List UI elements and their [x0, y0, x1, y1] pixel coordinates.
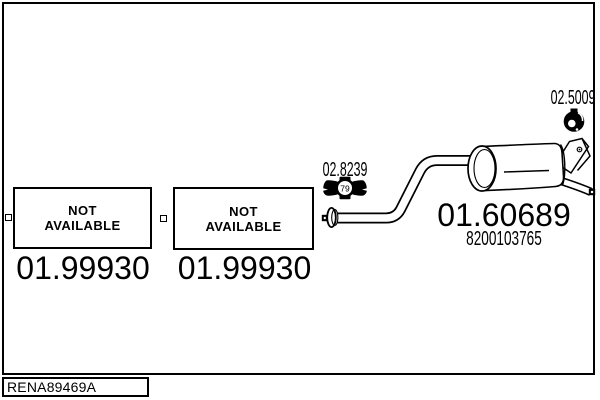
rubber-hanger-icon — [564, 109, 585, 132]
diagram-page: 79 NOT AVAILABLE NOT AVAILABLE 01.99930 … — [0, 0, 600, 400]
drawing-code: RENA89469A — [4, 380, 96, 394]
part-number-clamp[interactable]: 02.8239 — [314, 160, 376, 180]
connector-square-left — [5, 214, 12, 221]
part-number-middle[interactable]: 01.99930 — [174, 252, 315, 284]
oem-number-muffler: 8200103765 — [456, 229, 551, 249]
muffler-end-cap — [468, 146, 496, 191]
drawing-code-box: RENA89469A — [2, 377, 149, 397]
clamp-size-label: 79 — [340, 184, 350, 194]
part-number-muffler[interactable]: 01.60689 — [434, 199, 574, 231]
muffler-body — [468, 144, 565, 192]
not-available-label: AVAILABLE — [205, 219, 281, 234]
not-available-label: AVAILABLE — [44, 218, 120, 233]
not-available-label: NOT — [68, 203, 97, 218]
flange-icon — [322, 208, 338, 227]
part-number-left[interactable]: 01.99930 — [13, 252, 153, 284]
not-available-box-left: NOT AVAILABLE — [13, 187, 152, 249]
not-available-label: NOT — [229, 204, 258, 219]
part-number-hanger[interactable]: 02.5009 — [542, 88, 600, 108]
connector-square-middle — [160, 215, 167, 222]
not-available-box-middle: NOT AVAILABLE — [173, 187, 314, 250]
